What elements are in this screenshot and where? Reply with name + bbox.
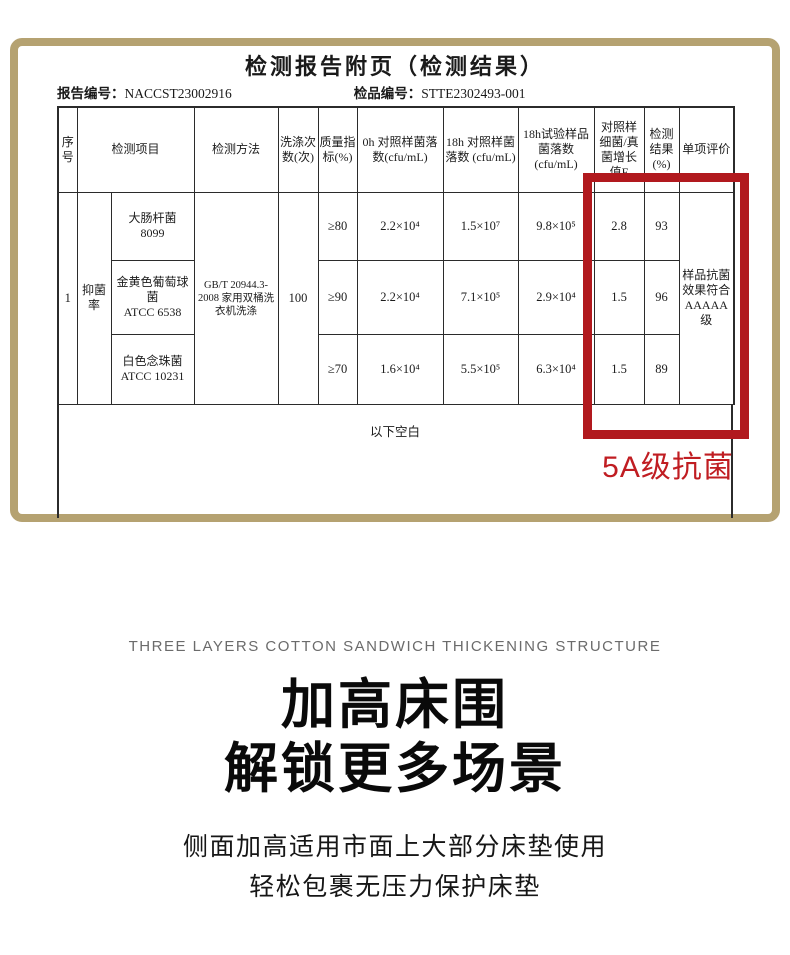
table-row: 白色念珠菌 ATCC 10231 ≥70 1.6×10⁴ 5.5×10⁵ 6.3… bbox=[58, 334, 734, 404]
col-quality-index: 质量指标(%) bbox=[318, 107, 357, 192]
feature-heading: 加高床围 解锁更多场景 bbox=[0, 673, 790, 801]
col-evaluation: 单项评价 bbox=[679, 107, 734, 192]
feature-heading-line1: 加高床围 bbox=[0, 673, 790, 737]
table-row: 金黄色葡萄球菌 ATCC 6538 ≥90 2.2×10⁴ 7.1×10⁵ 2.… bbox=[58, 260, 734, 334]
cell-cfu-18h-sample: 6.3×10⁴ bbox=[518, 334, 594, 404]
cell-serial: 1 bbox=[58, 192, 77, 404]
cell-cfu-18h-control: 5.5×10⁵ bbox=[443, 334, 518, 404]
cell-cfu-0h: 2.2×10⁴ bbox=[357, 192, 443, 260]
cell-result: 96 bbox=[644, 260, 679, 334]
report-no-value: NACCST23002916 bbox=[125, 86, 232, 101]
cell-result: 89 bbox=[644, 334, 679, 404]
cell-item-group: 抑菌率 bbox=[77, 192, 111, 404]
feature-eyebrow: THREE LAYERS COTTON SANDWICH THICKENING … bbox=[0, 638, 790, 655]
organism-strain: ATCC 10231 bbox=[113, 369, 193, 384]
cell-cfu-18h-sample: 2.9×10⁴ bbox=[518, 260, 594, 334]
cell-wash-count: 100 bbox=[278, 192, 318, 404]
col-wash-count: 洗涤次数(次) bbox=[278, 107, 318, 192]
organism-name: 大肠杆菌 bbox=[113, 211, 193, 226]
feature-section: THREE LAYERS COTTON SANDWICH THICKENING … bbox=[0, 522, 790, 907]
cell-growth-value: 2.8 bbox=[594, 192, 644, 260]
cell-growth-value: 1.5 bbox=[594, 334, 644, 404]
cell-result: 93 bbox=[644, 192, 679, 260]
cell-quality-index: ≥80 bbox=[318, 192, 357, 260]
test-report-card: 检测报告附页（检测结果） 报告编号：NACCST23002916 检品编号：ST… bbox=[10, 38, 780, 522]
col-serial: 序号 bbox=[58, 107, 77, 192]
organism-strain: ATCC 6538 bbox=[113, 305, 193, 320]
organism-strain: 8099 bbox=[113, 226, 193, 241]
report-no: 报告编号：NACCST23002916 bbox=[57, 84, 232, 104]
col-method: 检测方法 bbox=[194, 107, 278, 192]
sample-no-label: 检品编号： bbox=[354, 86, 422, 101]
feature-subtext-line1: 侧面加高适用市面上大部分床垫使用 bbox=[0, 827, 790, 867]
test-results-table: 序号 检测项目 检测方法 洗涤次数(次) 质量指标(%) 0h 对照样菌落数(c… bbox=[57, 106, 735, 405]
report-page: 检测报告附页（检测结果） 报告编号：NACCST23002916 检品编号：ST… bbox=[18, 46, 772, 518]
cell-cfu-18h-control: 1.5×10⁷ bbox=[443, 192, 518, 260]
feature-subtext: 侧面加高适用市面上大部分床垫使用 轻松包裹无压力保护床垫 bbox=[0, 827, 790, 907]
highlight-label: 5A级抗菌 bbox=[588, 451, 748, 485]
cell-organism: 大肠杆菌 8099 bbox=[111, 192, 194, 260]
sample-no-value: STTE2302493-001 bbox=[421, 86, 525, 101]
cell-cfu-18h-sample: 9.8×10⁵ bbox=[518, 192, 594, 260]
report-no-label: 报告编号： bbox=[57, 86, 125, 101]
table-row: 1 抑菌率 大肠杆菌 8099 GB/T 20944.3-2008 家用双桶洗衣… bbox=[58, 192, 734, 260]
cell-cfu-0h: 2.2×10⁴ bbox=[357, 260, 443, 334]
cell-cfu-0h: 1.6×10⁴ bbox=[357, 334, 443, 404]
cell-quality-index: ≥70 bbox=[318, 334, 357, 404]
col-item: 检测项目 bbox=[77, 107, 194, 192]
col-growth-value: 对照样细菌/真菌增长值F bbox=[594, 107, 644, 192]
table-header-row: 序号 检测项目 检测方法 洗涤次数(次) 质量指标(%) 0h 对照样菌落数(c… bbox=[58, 107, 734, 192]
cell-growth-value: 1.5 bbox=[594, 260, 644, 334]
sample-no: 检品编号：STTE2302493-001 bbox=[354, 84, 526, 104]
organism-name: 金黄色葡萄球菌 bbox=[113, 275, 193, 305]
cell-organism: 白色念珠菌 ATCC 10231 bbox=[111, 334, 194, 404]
organism-name: 白色念珠菌 bbox=[113, 354, 193, 369]
col-result: 检测结果(%) bbox=[644, 107, 679, 192]
report-numbers-row: 报告编号：NACCST23002916 检品编号：STTE2302493-001 bbox=[57, 84, 772, 104]
cell-quality-index: ≥90 bbox=[318, 260, 357, 334]
cell-cfu-18h-control: 7.1×10⁵ bbox=[443, 260, 518, 334]
col-cfu-0h: 0h 对照样菌落数(cfu/mL) bbox=[357, 107, 443, 192]
feature-heading-line2: 解锁更多场景 bbox=[0, 737, 790, 801]
feature-subtext-line2: 轻松包裹无压力保护床垫 bbox=[0, 867, 790, 907]
cell-method: GB/T 20944.3-2008 家用双桶洗衣机洗涤 bbox=[194, 192, 278, 404]
cell-organism: 金黄色葡萄球菌 ATCC 6538 bbox=[111, 260, 194, 334]
cell-evaluation: 样品抗菌效果符合AAAAA级 bbox=[679, 192, 734, 404]
col-cfu-18h-control: 18h 对照样菌落数 (cfu/mL) bbox=[443, 107, 518, 192]
col-cfu-18h-sample: 18h试验样品菌落数 (cfu/mL) bbox=[518, 107, 594, 192]
report-title: 检测报告附页（检测结果） bbox=[18, 53, 772, 81]
